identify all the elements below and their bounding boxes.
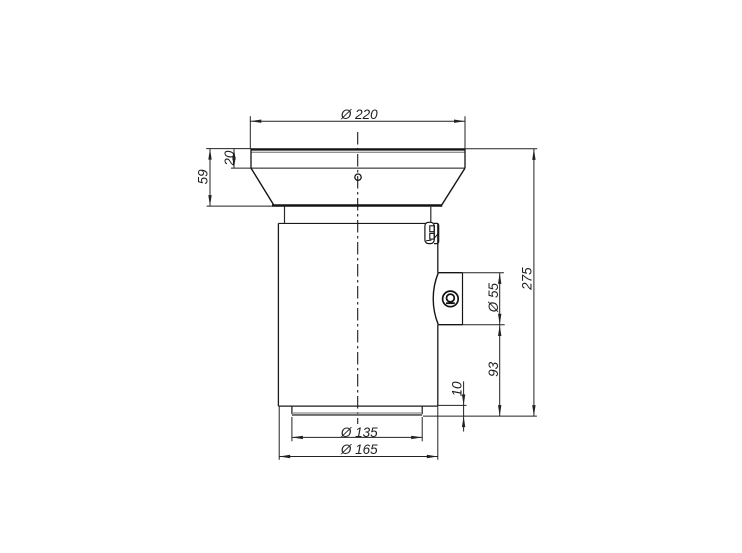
svg-text:275: 275 [520, 267, 535, 291]
svg-text:Ø 55: Ø 55 [486, 282, 501, 313]
svg-text:20: 20 [222, 150, 237, 167]
svg-text:59: 59 [196, 169, 211, 185]
svg-text:93: 93 [486, 361, 501, 377]
svg-text:10: 10 [450, 381, 465, 397]
svg-text:Ø 220: Ø 220 [340, 107, 378, 122]
svg-text:Ø 165: Ø 165 [340, 442, 378, 457]
svg-text:Ø 135: Ø 135 [340, 425, 378, 440]
